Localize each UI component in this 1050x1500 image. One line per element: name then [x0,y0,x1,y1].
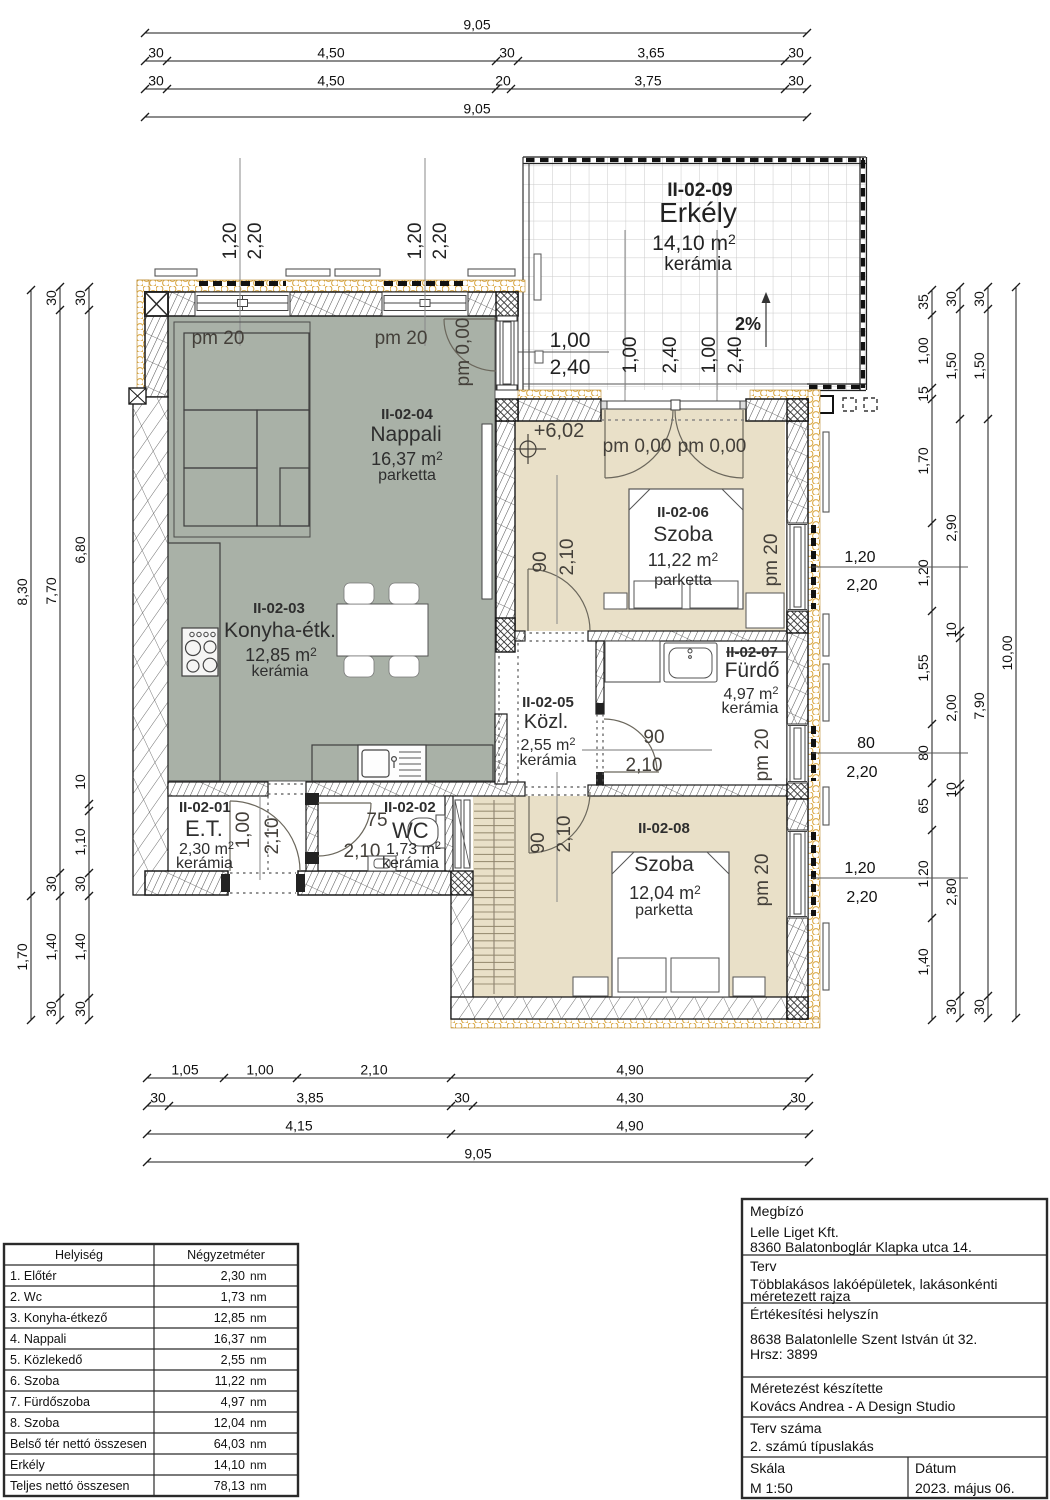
svg-text:10,00: 10,00 [999,635,1015,670]
svg-text:Lelle Liget Kft.: Lelle Liget Kft. [750,1224,839,1240]
svg-text:15: 15 [915,386,931,402]
svg-text:pm 20: pm 20 [752,729,773,782]
svg-text:30: 30 [148,45,164,61]
svg-text:30: 30 [43,876,59,892]
svg-text:1,70: 1,70 [14,943,30,970]
svg-text:7,90: 7,90 [971,692,987,719]
svg-text:kerámia: kerámia [382,855,439,872]
svg-text:II-02-06: II-02-06 [657,504,709,521]
svg-text:nm: nm [250,1374,267,1388]
svg-text:2,30: 2,30 [221,1269,245,1283]
svg-text:1,20: 1,20 [220,223,241,260]
svg-text:10: 10 [72,774,88,790]
svg-text:Négyzetméter: Négyzetméter [187,1248,265,1262]
svg-text:Szoba: Szoba [653,523,713,546]
svg-text:30: 30 [72,290,88,306]
svg-text:11,22: 11,22 [215,1374,245,1388]
svg-text:78,13: 78,13 [214,1479,245,1493]
svg-text:Teljes nettó összesen: Teljes nettó összesen [10,1479,130,1493]
svg-text:30: 30 [971,999,987,1015]
svg-text:Értékesítési helyszín: Értékesítési helyszín [750,1306,878,1322]
svg-text:1,50: 1,50 [943,352,959,379]
svg-text:1,00: 1,00 [620,337,641,374]
svg-text:4. Nappali: 4. Nappali [10,1332,66,1346]
svg-text:2%: 2% [735,314,761,334]
svg-text:Megbízó: Megbízó [750,1203,804,1219]
svg-text:WC: WC [392,818,429,843]
svg-text:nm: nm [250,1311,267,1325]
svg-text:6,80: 6,80 [72,536,88,563]
svg-text:90: 90 [530,551,551,572]
svg-text:7,70: 7,70 [43,577,59,604]
svg-text:E.T.: E.T. [185,816,223,841]
svg-text:1,00: 1,00 [233,812,254,849]
svg-text:Fürdő: Fürdő [725,659,780,682]
svg-text:2,10: 2,10 [626,755,663,776]
svg-text:2. számú típuslakás: 2. számú típuslakás [750,1438,874,1454]
svg-text:II-02-03: II-02-03 [253,600,305,617]
svg-text:1,20: 1,20 [844,860,875,877]
svg-text:10: 10 [943,782,959,798]
svg-text:2,40: 2,40 [660,337,681,374]
svg-text:20: 20 [495,73,511,89]
svg-text:1,40: 1,40 [915,948,931,975]
svg-text:Terv: Terv [750,1258,776,1274]
svg-text:II-02-04: II-02-04 [381,406,433,423]
svg-text:3,75: 3,75 [634,73,661,89]
svg-text:2,10: 2,10 [554,816,575,853]
svg-text:nm: nm [250,1269,267,1283]
svg-text:1,70: 1,70 [915,447,931,474]
svg-text:II-02-05: II-02-05 [522,694,574,711]
svg-text:8360 Balatonboglár Klapka utca: 8360 Balatonboglár Klapka utca 14. [750,1239,972,1255]
svg-text:kerámia: kerámia [176,855,233,872]
svg-text:pm 0,00: pm 0,00 [603,436,672,457]
svg-text:9,05: 9,05 [464,1146,491,1162]
svg-text:1,00: 1,00 [246,1062,273,1078]
svg-text:nm: nm [250,1290,267,1304]
svg-text:Közl.: Közl. [524,711,568,733]
svg-text:30: 30 [971,291,987,307]
svg-text:64,03: 64,03 [214,1437,245,1451]
svg-text:1,00: 1,00 [915,337,931,364]
svg-text:90: 90 [528,832,549,853]
svg-text:14,10 m2: 14,10 m2 [652,231,736,255]
svg-text:2,20: 2,20 [846,577,877,594]
svg-text:65: 65 [915,798,931,814]
svg-text:30: 30 [454,1090,470,1106]
svg-text:2,20: 2,20 [430,223,451,260]
svg-text:Helyiség: Helyiség [55,1248,103,1262]
svg-text:Dátum: Dátum [915,1460,956,1476]
svg-text:2,55: 2,55 [221,1353,245,1367]
svg-text:2,40: 2,40 [550,356,591,379]
svg-text:2,20: 2,20 [846,889,877,906]
svg-text:nm: nm [250,1437,267,1451]
svg-text:1,73: 1,73 [221,1290,245,1304]
svg-text:3,85: 3,85 [296,1090,323,1106]
svg-text:8,30: 8,30 [14,578,30,605]
svg-text:8638 Balatonlelle Szent István: 8638 Balatonlelle Szent István út 32. [750,1331,977,1347]
svg-text:3. Konyha-étkező: 3. Konyha-étkező [10,1311,107,1325]
svg-text:30: 30 [72,876,88,892]
svg-text:7. Fürdőszoba: 7. Fürdőszoba [10,1395,90,1409]
svg-text:Konyha-étk.: Konyha-étk. [224,619,336,642]
svg-text:11,22 m2: 11,22 m2 [648,550,719,570]
svg-text:4,15: 4,15 [285,1118,312,1134]
svg-text:30: 30 [150,1090,166,1106]
svg-text:4,50: 4,50 [317,45,344,61]
svg-text:1,20: 1,20 [405,223,426,260]
svg-text:kerámia: kerámia [520,752,577,769]
svg-text:Erkély: Erkély [659,197,737,228]
svg-text:12,04: 12,04 [214,1416,245,1430]
svg-text:4,30: 4,30 [616,1090,643,1106]
svg-text:méretezett rajza: méretezett rajza [750,1288,851,1304]
svg-text:6. Szoba: 6. Szoba [10,1374,59,1388]
svg-text:4,90: 4,90 [616,1062,643,1078]
svg-text:1,00: 1,00 [699,337,720,374]
svg-text:2,90: 2,90 [943,514,959,541]
svg-text:2,20: 2,20 [245,223,266,260]
svg-text:35: 35 [915,294,931,310]
svg-text:9,05: 9,05 [463,101,490,117]
svg-text:kerámia: kerámia [664,254,732,275]
svg-text:1,20: 1,20 [844,549,875,566]
svg-text:12,04 m2: 12,04 m2 [629,883,701,903]
svg-text:nm: nm [250,1353,267,1367]
svg-text:II-02-08: II-02-08 [638,820,690,837]
svg-text:Szoba: Szoba [634,853,694,876]
svg-text:1,40: 1,40 [72,933,88,960]
svg-text:parketta: parketta [635,902,693,919]
svg-text:Hrsz: 3899: Hrsz: 3899 [750,1346,818,1362]
svg-text:nm: nm [250,1458,267,1472]
svg-text:1,55: 1,55 [915,654,931,681]
svg-text:14,10: 14,10 [214,1458,245,1472]
svg-text:Kovács Andrea - A Design Studi: Kovács Andrea - A Design Studio [750,1398,956,1414]
svg-text:30: 30 [788,45,804,61]
svg-text:1,10: 1,10 [72,828,88,855]
svg-text:nm: nm [250,1395,267,1409]
svg-text:nm: nm [250,1416,267,1430]
svg-text:30: 30 [790,1090,806,1106]
svg-text:30: 30 [148,73,164,89]
svg-text:2,20: 2,20 [846,764,877,781]
svg-text:80: 80 [857,735,875,752]
svg-text:1,00: 1,00 [550,329,591,352]
svg-text:2023. május 06.: 2023. május 06. [915,1480,1015,1496]
svg-text:12,85 m2: 12,85 m2 [245,645,317,665]
svg-text:2,00: 2,00 [943,694,959,721]
svg-text:2. Wc: 2. Wc [10,1290,42,1304]
svg-text:1,50: 1,50 [971,352,987,379]
svg-text:nm: nm [250,1332,267,1346]
svg-text:10: 10 [943,622,959,638]
svg-text:30: 30 [43,290,59,306]
svg-text:II-02-02: II-02-02 [384,799,436,816]
svg-text:nm: nm [250,1479,267,1493]
svg-text:M 1:50: M 1:50 [750,1480,793,1496]
svg-text:16,37 m2: 16,37 m2 [371,449,443,469]
svg-text:30: 30 [943,291,959,307]
svg-text:kerámia: kerámia [722,700,779,717]
svg-text:90: 90 [643,727,664,748]
svg-text:parketta: parketta [654,572,712,589]
svg-text:pm 20: pm 20 [192,328,245,349]
svg-text:2,40: 2,40 [725,337,746,374]
svg-text:pm 0,00: pm 0,00 [453,318,474,387]
svg-text:pm 20: pm 20 [375,328,428,349]
svg-text:1,20: 1,20 [915,860,931,887]
svg-text:30: 30 [943,999,959,1015]
svg-text:parketta: parketta [378,467,436,484]
svg-text:5. Közlekedő: 5. Közlekedő [10,1353,82,1367]
svg-text:kerámia: kerámia [252,663,309,680]
svg-text:+6,02: +6,02 [534,420,585,442]
svg-text:2,80: 2,80 [943,878,959,905]
svg-text:Skála: Skála [750,1460,785,1476]
svg-text:4,97: 4,97 [221,1395,245,1409]
svg-text:4,50: 4,50 [317,73,344,89]
svg-text:II-02-01: II-02-01 [179,799,231,816]
svg-text:2,10: 2,10 [557,539,578,576]
svg-text:30: 30 [72,1001,88,1017]
svg-text:1,20: 1,20 [915,559,931,586]
svg-text:2,10: 2,10 [360,1062,387,1078]
svg-text:Méretezést készítette: Méretezést készítette [750,1380,883,1396]
svg-text:1,05: 1,05 [171,1062,198,1078]
svg-text:Erkély: Erkély [10,1458,45,1472]
svg-text:pm 20: pm 20 [761,534,782,587]
svg-text:8. Szoba: 8. Szoba [10,1416,59,1430]
svg-text:30: 30 [788,73,804,89]
svg-text:4,90: 4,90 [616,1118,643,1134]
svg-text:1. Előtér: 1. Előtér [10,1269,57,1283]
svg-text:12,85: 12,85 [214,1311,245,1325]
svg-text:pm 20: pm 20 [752,854,773,907]
svg-text:Terv száma: Terv száma [750,1420,822,1436]
svg-text:Belső tér nettó összesen: Belső tér nettó összesen [10,1437,147,1451]
svg-text:30: 30 [43,1001,59,1017]
svg-text:9,05: 9,05 [463,17,490,33]
svg-text:16,37: 16,37 [214,1332,245,1346]
svg-text:1,40: 1,40 [43,933,59,960]
svg-text:Nappali: Nappali [370,423,441,446]
svg-text:30: 30 [499,45,515,61]
svg-text:3,65: 3,65 [637,45,664,61]
svg-text:2,10: 2,10 [262,818,283,855]
svg-text:pm 0,00: pm 0,00 [678,436,747,457]
